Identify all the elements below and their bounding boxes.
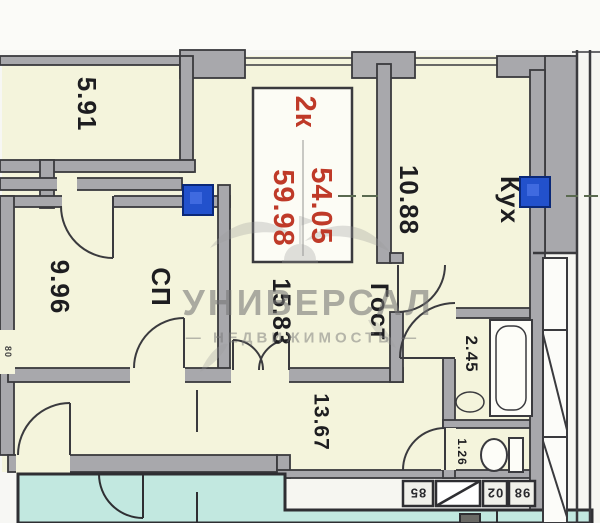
room-label-bedroom-name: СП <box>144 260 178 315</box>
blue-marker-right <box>519 176 551 208</box>
room-label-kitchen-area: 10.88 <box>391 165 425 235</box>
floorplan-canvas: 5.91 Кух 10.88 СП 9.96 Гост 15.83 2.45 1… <box>0 0 600 523</box>
door-width-label: 80 <box>1 346 13 358</box>
apartment-area-secondary: 59.98 <box>263 169 301 247</box>
room-label-bedroom-area: 9.96 <box>42 260 76 315</box>
room-label-wc: 1.26 <box>453 438 469 465</box>
vent-number-3: 98 <box>514 486 530 501</box>
bathtub <box>490 320 532 416</box>
room-label-hallway: 13.67 <box>307 393 334 451</box>
vent-number-1: 85 <box>410 486 426 501</box>
vent-number-2: 02 <box>487 486 503 501</box>
room-label-bathroom: 2.45 <box>460 335 482 372</box>
apartment-area-total: 54.05 <box>301 167 339 245</box>
watermark-tagline: — НЕДВИЖИМОСТЬ — <box>186 330 420 347</box>
apartment-type-label: 2к <box>285 96 323 129</box>
toilet <box>481 438 523 472</box>
room-label-balcony: 5.91 <box>69 77 103 132</box>
shaft-column <box>543 258 567 523</box>
watermark-brand: УНИВЕРСАЛ <box>182 282 433 324</box>
blue-marker-left <box>182 184 214 216</box>
room-label-kitchen: Кух 10.88 <box>324 165 594 235</box>
